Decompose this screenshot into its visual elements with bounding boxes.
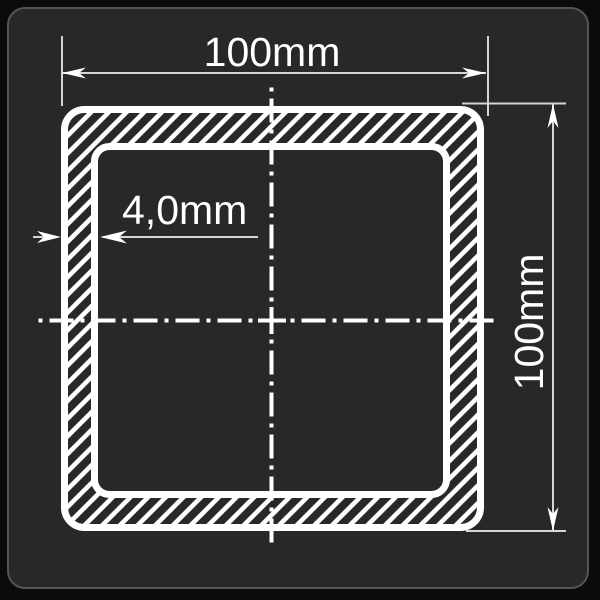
technical-drawing: 100mm 100mm 4,0mm (0, 0, 600, 600)
width-dimension-label: 100mm (204, 29, 341, 75)
thickness-dimension-label: 4,0mm (122, 187, 247, 233)
height-dimension-label: 100mm (506, 254, 552, 391)
section-drawing: 100mm 100mm 4,0mm (0, 0, 600, 600)
